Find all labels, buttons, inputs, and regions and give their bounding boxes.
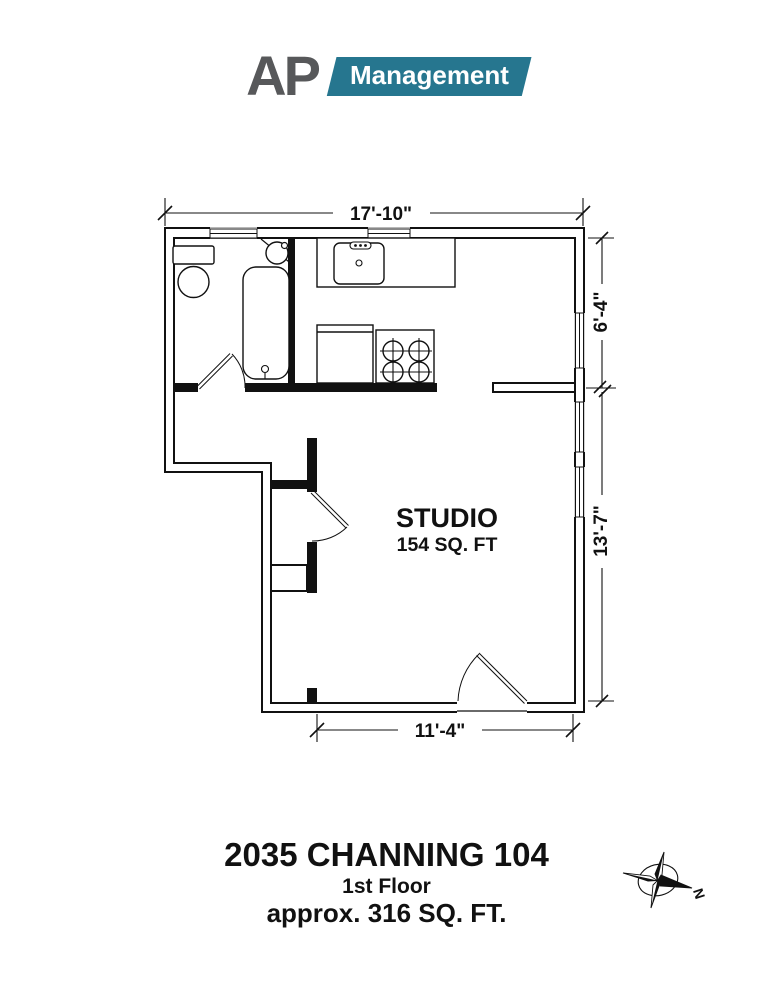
closet-divider-wall <box>271 565 307 591</box>
kitchen-right-wall <box>493 383 575 392</box>
entry-opening <box>457 701 527 714</box>
dimension-bottom-label: 11'-4" <box>415 721 466 742</box>
kitchen-sink-icon <box>334 242 384 284</box>
window-right-3 <box>574 467 585 517</box>
kitchen-cabinet <box>317 325 373 383</box>
exterior-walls <box>165 228 584 712</box>
dimension-top-label: 17'-10" <box>350 204 412 225</box>
logo-ap-text: AP <box>246 48 318 104</box>
dimension-right-upper-label: 6'-4" <box>591 292 612 333</box>
window-right-1 <box>574 313 585 368</box>
window-right-2 <box>574 402 585 452</box>
company-logo: AP Management <box>246 48 527 104</box>
compass-north-label: N <box>690 886 708 901</box>
dimension-right-lower-label: 13'-7" <box>591 505 612 557</box>
room-area-label: 154 SQ. FT <box>397 534 498 556</box>
compass-rose-icon: N <box>620 842 715 924</box>
window-top-left <box>210 227 257 238</box>
stove-icon <box>376 330 434 383</box>
window-top-right <box>368 227 410 238</box>
room-label: STUDIO <box>396 503 498 533</box>
floor-plan: 17'-10" 6'-4" 13'-7" 11'-4" STUDIO 154 S… <box>138 186 638 771</box>
logo-management-box: Management <box>327 57 532 96</box>
bathtub-icon <box>243 267 289 379</box>
logo-management-text: Management <box>350 62 509 88</box>
